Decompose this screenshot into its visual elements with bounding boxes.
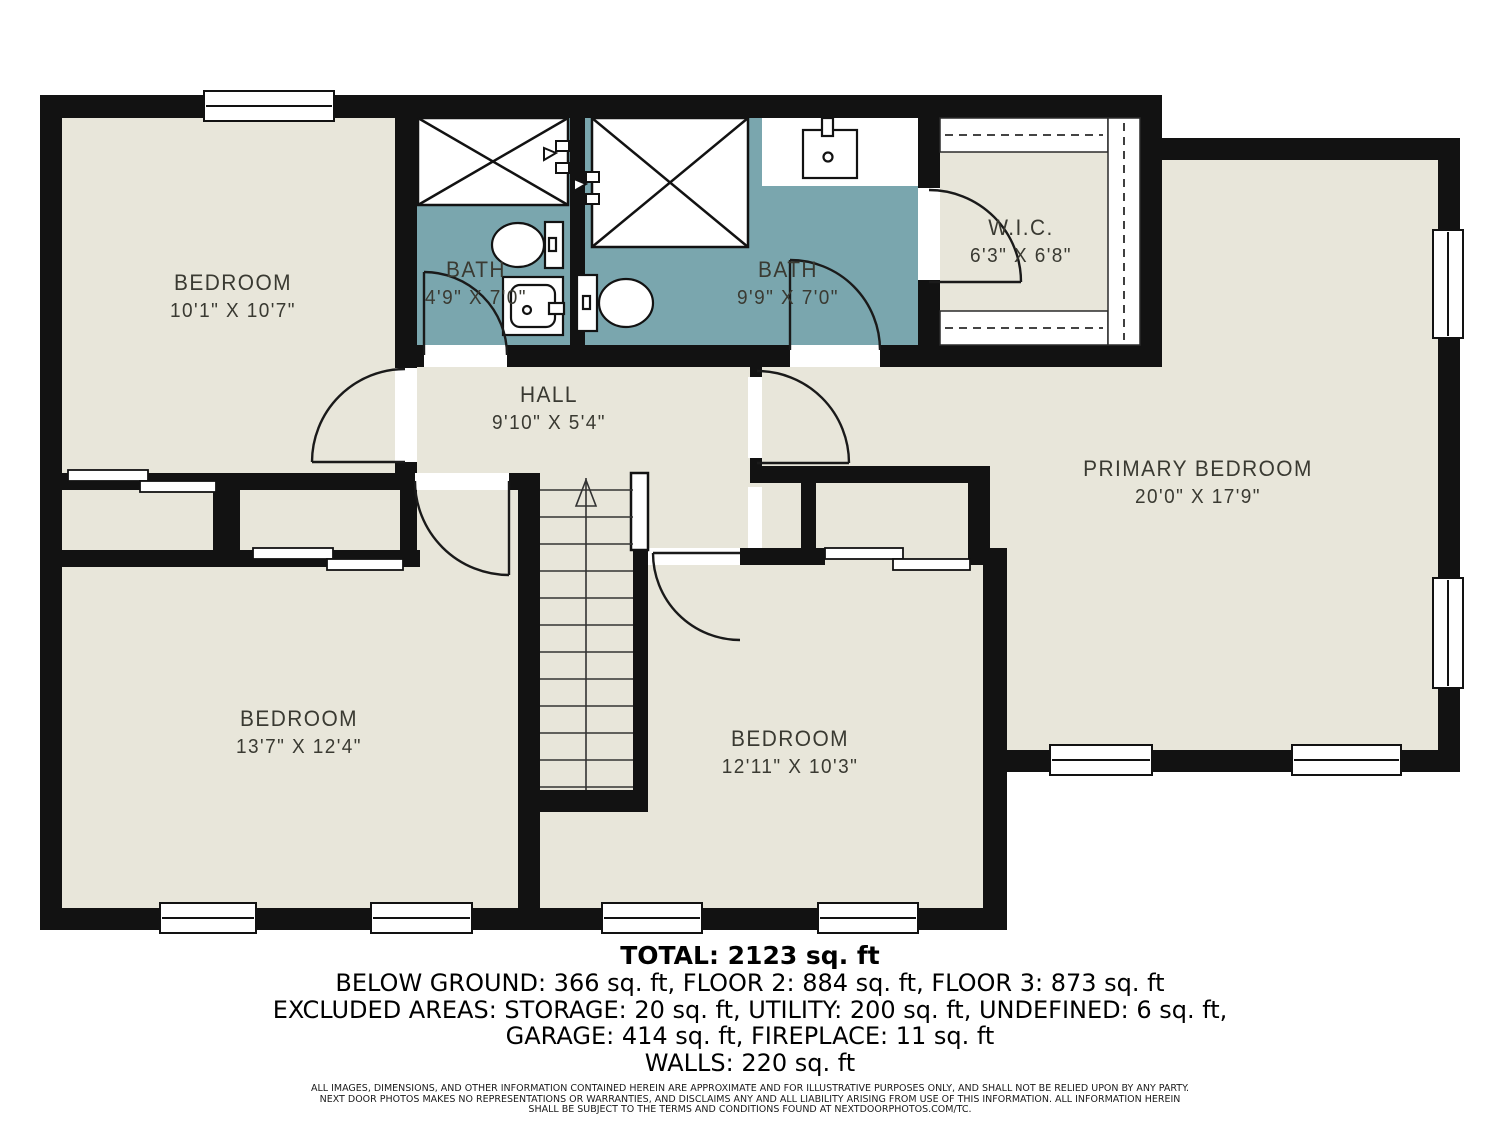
total-area: TOTAL: 2123 sq. ft bbox=[0, 942, 1500, 970]
room-name: BATH bbox=[737, 256, 839, 284]
room-label-bath-small: BATH 4'9" X 7'0" bbox=[425, 256, 527, 312]
window bbox=[204, 91, 334, 121]
walls-area-line: WALLS: 220 sq. ft bbox=[0, 1050, 1500, 1077]
window bbox=[1433, 578, 1463, 688]
stair-railing bbox=[631, 473, 648, 550]
room-dimensions: 9'10" X 5'4" bbox=[492, 409, 606, 437]
room-name: BATH bbox=[425, 256, 527, 284]
floor-areas-line: BELOW GROUND: 366 sq. ft, FLOOR 2: 884 s… bbox=[0, 970, 1500, 997]
room-name: HALL bbox=[492, 381, 606, 409]
toilet-icon bbox=[577, 275, 653, 331]
garage-fireplace-line: GARAGE: 414 sq. ft, FIREPLACE: 11 sq. ft bbox=[0, 1023, 1500, 1050]
room-name: BEDROOM bbox=[236, 705, 362, 733]
room-name: BEDROOM bbox=[722, 725, 858, 753]
room-label-bedroom-bottom-left: BEDROOM 13'7" X 12'4" bbox=[236, 705, 362, 761]
room-dimensions: 10'1" X 10'7" bbox=[170, 297, 296, 325]
room-name: W.I.C. bbox=[970, 214, 1072, 242]
window bbox=[818, 903, 918, 933]
excluded-areas-line: EXCLUDED AREAS: STORAGE: 20 sq. ft, UTIL… bbox=[0, 997, 1500, 1024]
window bbox=[371, 903, 472, 933]
disclaimer: ALL IMAGES, DIMENSIONS, AND OTHER INFORM… bbox=[0, 1084, 1500, 1116]
room-label-primary-bedroom: PRIMARY BEDROOM 20'0" X 17'9" bbox=[1083, 455, 1313, 511]
room-label-wic: W.I.C. 6'3" X 6'8" bbox=[970, 214, 1072, 270]
window bbox=[1050, 745, 1152, 775]
room-label-hall: HALL 9'10" X 5'4" bbox=[492, 381, 606, 437]
room-dimensions: 13'7" X 12'4" bbox=[236, 733, 362, 761]
room-dimensions: 12'11" X 10'3" bbox=[722, 753, 858, 781]
window bbox=[1433, 230, 1463, 338]
disclaimer-line: SHALL BE SUBJECT TO THE TERMS AND CONDIT… bbox=[0, 1105, 1500, 1116]
room-dimensions: 9'9" X 7'0" bbox=[737, 284, 839, 312]
room-dimensions: 4'9" X 7'0" bbox=[425, 284, 527, 312]
room-dimensions: 20'0" X 17'9" bbox=[1083, 483, 1313, 511]
area-summary: TOTAL: 2123 sq. ft BELOW GROUND: 366 sq.… bbox=[0, 942, 1500, 1116]
room-name: BEDROOM bbox=[170, 269, 296, 297]
shower-icon bbox=[592, 118, 748, 247]
window bbox=[160, 903, 256, 933]
room-dimensions: 6'3" X 6'8" bbox=[970, 242, 1072, 270]
room-label-bedroom-top-left: BEDROOM 10'1" X 10'7" bbox=[170, 269, 296, 325]
room-label-bedroom-bottom-middle: BEDROOM 12'11" X 10'3" bbox=[722, 725, 858, 781]
room-name: PRIMARY BEDROOM bbox=[1083, 455, 1313, 483]
room-label-bath-large: BATH 9'9" X 7'0" bbox=[737, 256, 839, 312]
floor-plan-page: BEDROOM 10'1" X 10'7" BATH 4'9" X 7'0" B… bbox=[0, 0, 1500, 1125]
shower-icon bbox=[418, 118, 568, 205]
window bbox=[602, 903, 702, 933]
window bbox=[1292, 745, 1401, 775]
disclaimer-line: ALL IMAGES, DIMENSIONS, AND OTHER INFORM… bbox=[0, 1084, 1500, 1095]
